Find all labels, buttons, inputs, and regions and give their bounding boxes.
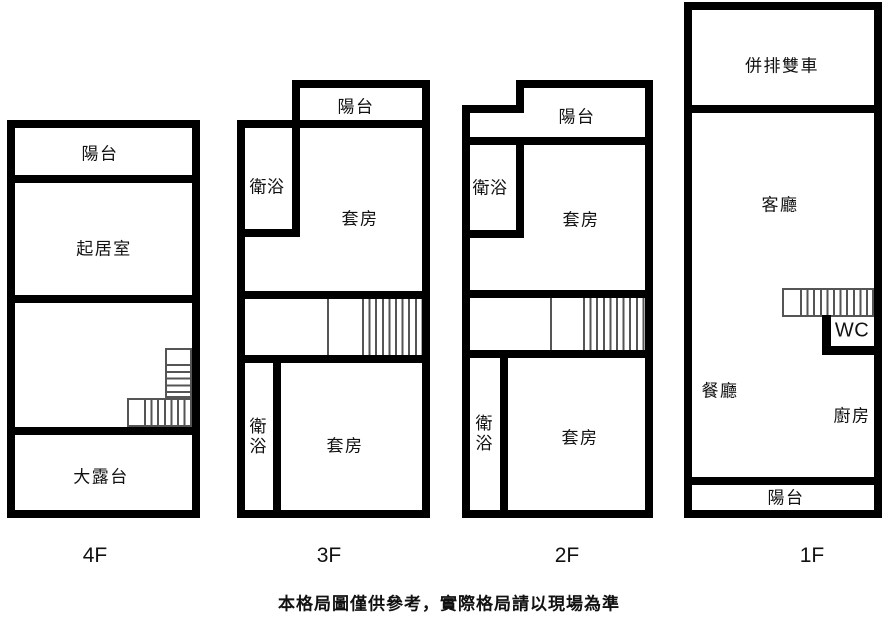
wall-2f-left — [462, 105, 470, 518]
wall-3f-bath-top-right — [292, 128, 300, 237]
wall-2f-right — [645, 80, 653, 518]
wall-2f-bath-top-bottom — [470, 230, 524, 238]
disclaimer-text: 本格局圖僅供參考，實際格局請以現場為準 — [278, 590, 620, 615]
wall-3f-stairband-top — [245, 291, 422, 299]
stairs-2f-treads — [583, 298, 645, 350]
stair-treads — [800, 290, 872, 315]
floor-label-1f: 1F — [800, 544, 825, 568]
room-label-suite-bottom-2f: 套房 — [562, 424, 599, 449]
wall-2f-bottom — [462, 510, 653, 518]
wall-2f-balcony-bottom — [470, 137, 645, 145]
floorplan-2f: 陽台 衛浴 套房 衛浴 套房 — [462, 80, 653, 518]
stair-divider-line — [550, 298, 552, 350]
wall-3f-bath-top-bottom — [245, 229, 300, 237]
room-label-garage-1f: 併排雙車 — [745, 52, 819, 77]
room-label-suite-bottom-3f: 套房 — [327, 432, 364, 457]
room-label-suite-top-2f: 套房 — [563, 206, 600, 231]
wall-2f-stairband-bottom — [470, 350, 645, 358]
room-label-terrace-4f: 大露台 — [73, 463, 129, 488]
outer-wall-1f — [684, 2, 882, 518]
stairs-4f-upper-flight — [165, 348, 192, 398]
room-label-suite-top-3f: 套房 — [342, 205, 379, 230]
wall-2f-bath-bottom-right — [500, 358, 508, 510]
wall-1f-garage-bottom — [692, 105, 874, 113]
wall-2f-top — [516, 80, 653, 88]
wall-4f-stairroom-bottom — [15, 427, 192, 435]
room-label-kitchen-1f: 廚房 — [834, 402, 871, 427]
floor-label-3f: 3F — [317, 544, 342, 568]
floor-label-4f: 4F — [83, 544, 108, 568]
room-label-living-1f: 客廳 — [762, 191, 799, 216]
room-label-balcony-2f: 陽台 — [559, 103, 596, 128]
room-label-bath-top-3f: 衛浴 — [250, 173, 285, 198]
wall-3f-bath-bottom-right — [273, 363, 281, 510]
floorplan-3f: 陽台 衛浴 套房 衛浴 套房 — [237, 80, 430, 518]
stairs-3f-treads — [362, 299, 422, 355]
stairs-1f — [782, 288, 874, 317]
wall-2f-bath-top-right — [516, 145, 524, 238]
stair-treads — [144, 400, 190, 425]
wall-2f-stairband-top — [470, 290, 645, 298]
wall-1f-wc-bottom — [822, 346, 874, 355]
room-label-dining-1f: 餐廳 — [702, 377, 739, 402]
room-label-balcony-3f: 陽台 — [338, 93, 375, 118]
room-label-bath-bottom-3f: 衛浴 — [249, 417, 268, 457]
stair-treads — [167, 364, 190, 396]
room-label-balcony-1f: 陽台 — [768, 484, 805, 509]
room-label-balcony-4f: 陽台 — [82, 140, 119, 165]
room-label-bath-top-2f: 衛浴 — [473, 174, 508, 199]
wall-3f-stairband-bottom — [245, 355, 422, 363]
room-label-bath-bottom-2f: 衛浴 — [475, 414, 494, 454]
stairs-4f-lower-flight — [127, 398, 192, 427]
room-label-wc-1f: WC — [835, 320, 869, 343]
room-label-living-4f: 起居室 — [76, 235, 132, 260]
wall-4f-living-bottom — [15, 295, 192, 303]
stair-divider-line — [327, 299, 329, 355]
floor-label-2f: 2F — [555, 544, 580, 568]
floorplan-1f: 併排雙車 客廳 WC 餐廳 廚房 陽台 — [684, 2, 882, 518]
wall-4f-balcony-bottom — [15, 175, 192, 183]
wall-2f-notch-horizontal — [462, 105, 524, 113]
floorplan-4f: 陽台 起居室 大露台 — [7, 120, 200, 518]
